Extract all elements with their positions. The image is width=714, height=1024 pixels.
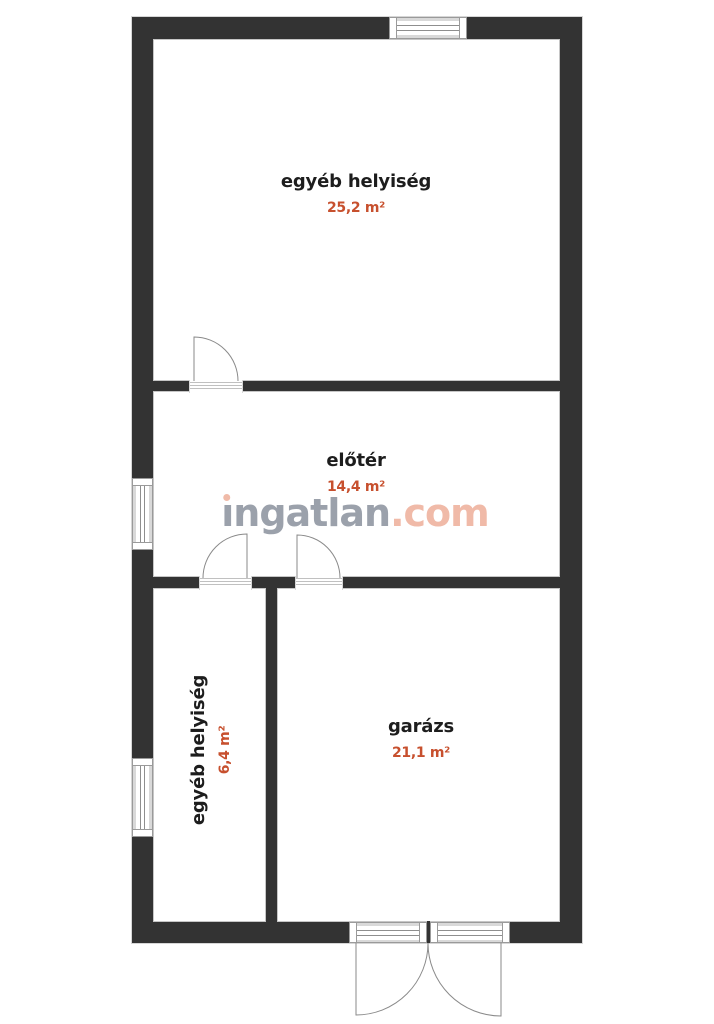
watermark-stem-text: ıngatlan: [221, 491, 390, 535]
entrance-door-panel-left: [349, 922, 427, 943]
entrance-door-divider: [427, 921, 430, 943]
label-eloter: előtér 14,4 m²: [326, 450, 385, 496]
room-name: egyéb helyiség: [188, 675, 210, 825]
door-arc-entrance-left: [356, 943, 428, 1015]
watermark-stem: ıngatlan: [221, 494, 390, 532]
window-icon-left-lower: [132, 758, 153, 837]
room-name: előtér: [326, 450, 385, 472]
door-threshold-eloter-right: [295, 576, 343, 590]
door-threshold-top-room: [189, 380, 243, 393]
room-area: 25,2 m²: [281, 200, 431, 217]
label-egyeb-helyiseg-top: egyéb helyiség 25,2 m²: [281, 171, 431, 217]
floor-plan: egyéb helyiség 25,2 m² előtér 14,4 m² eg…: [0, 0, 714, 1024]
room-name: garázs: [388, 716, 454, 738]
watermark-suffix: .com: [390, 491, 489, 535]
door-threshold-eloter-left: [199, 576, 252, 590]
room-name: egyéb helyiség: [281, 171, 431, 193]
window-icon-top: [389, 17, 467, 39]
window-icon-left-upper: [132, 478, 153, 550]
room-area: 21,1 m²: [388, 745, 454, 762]
label-egyeb-helyiseg-left: egyéb helyiség 6,4 m²: [188, 675, 234, 825]
watermark: ıngatlan.com: [221, 494, 488, 532]
label-garazs: garázs 21,1 m²: [388, 716, 454, 762]
room-area: 6,4 m²: [217, 675, 234, 825]
watermark-i-dot-icon: [223, 494, 230, 501]
door-arc-entrance-right: [428, 943, 501, 1016]
entrance-door-panel-right: [430, 922, 510, 943]
